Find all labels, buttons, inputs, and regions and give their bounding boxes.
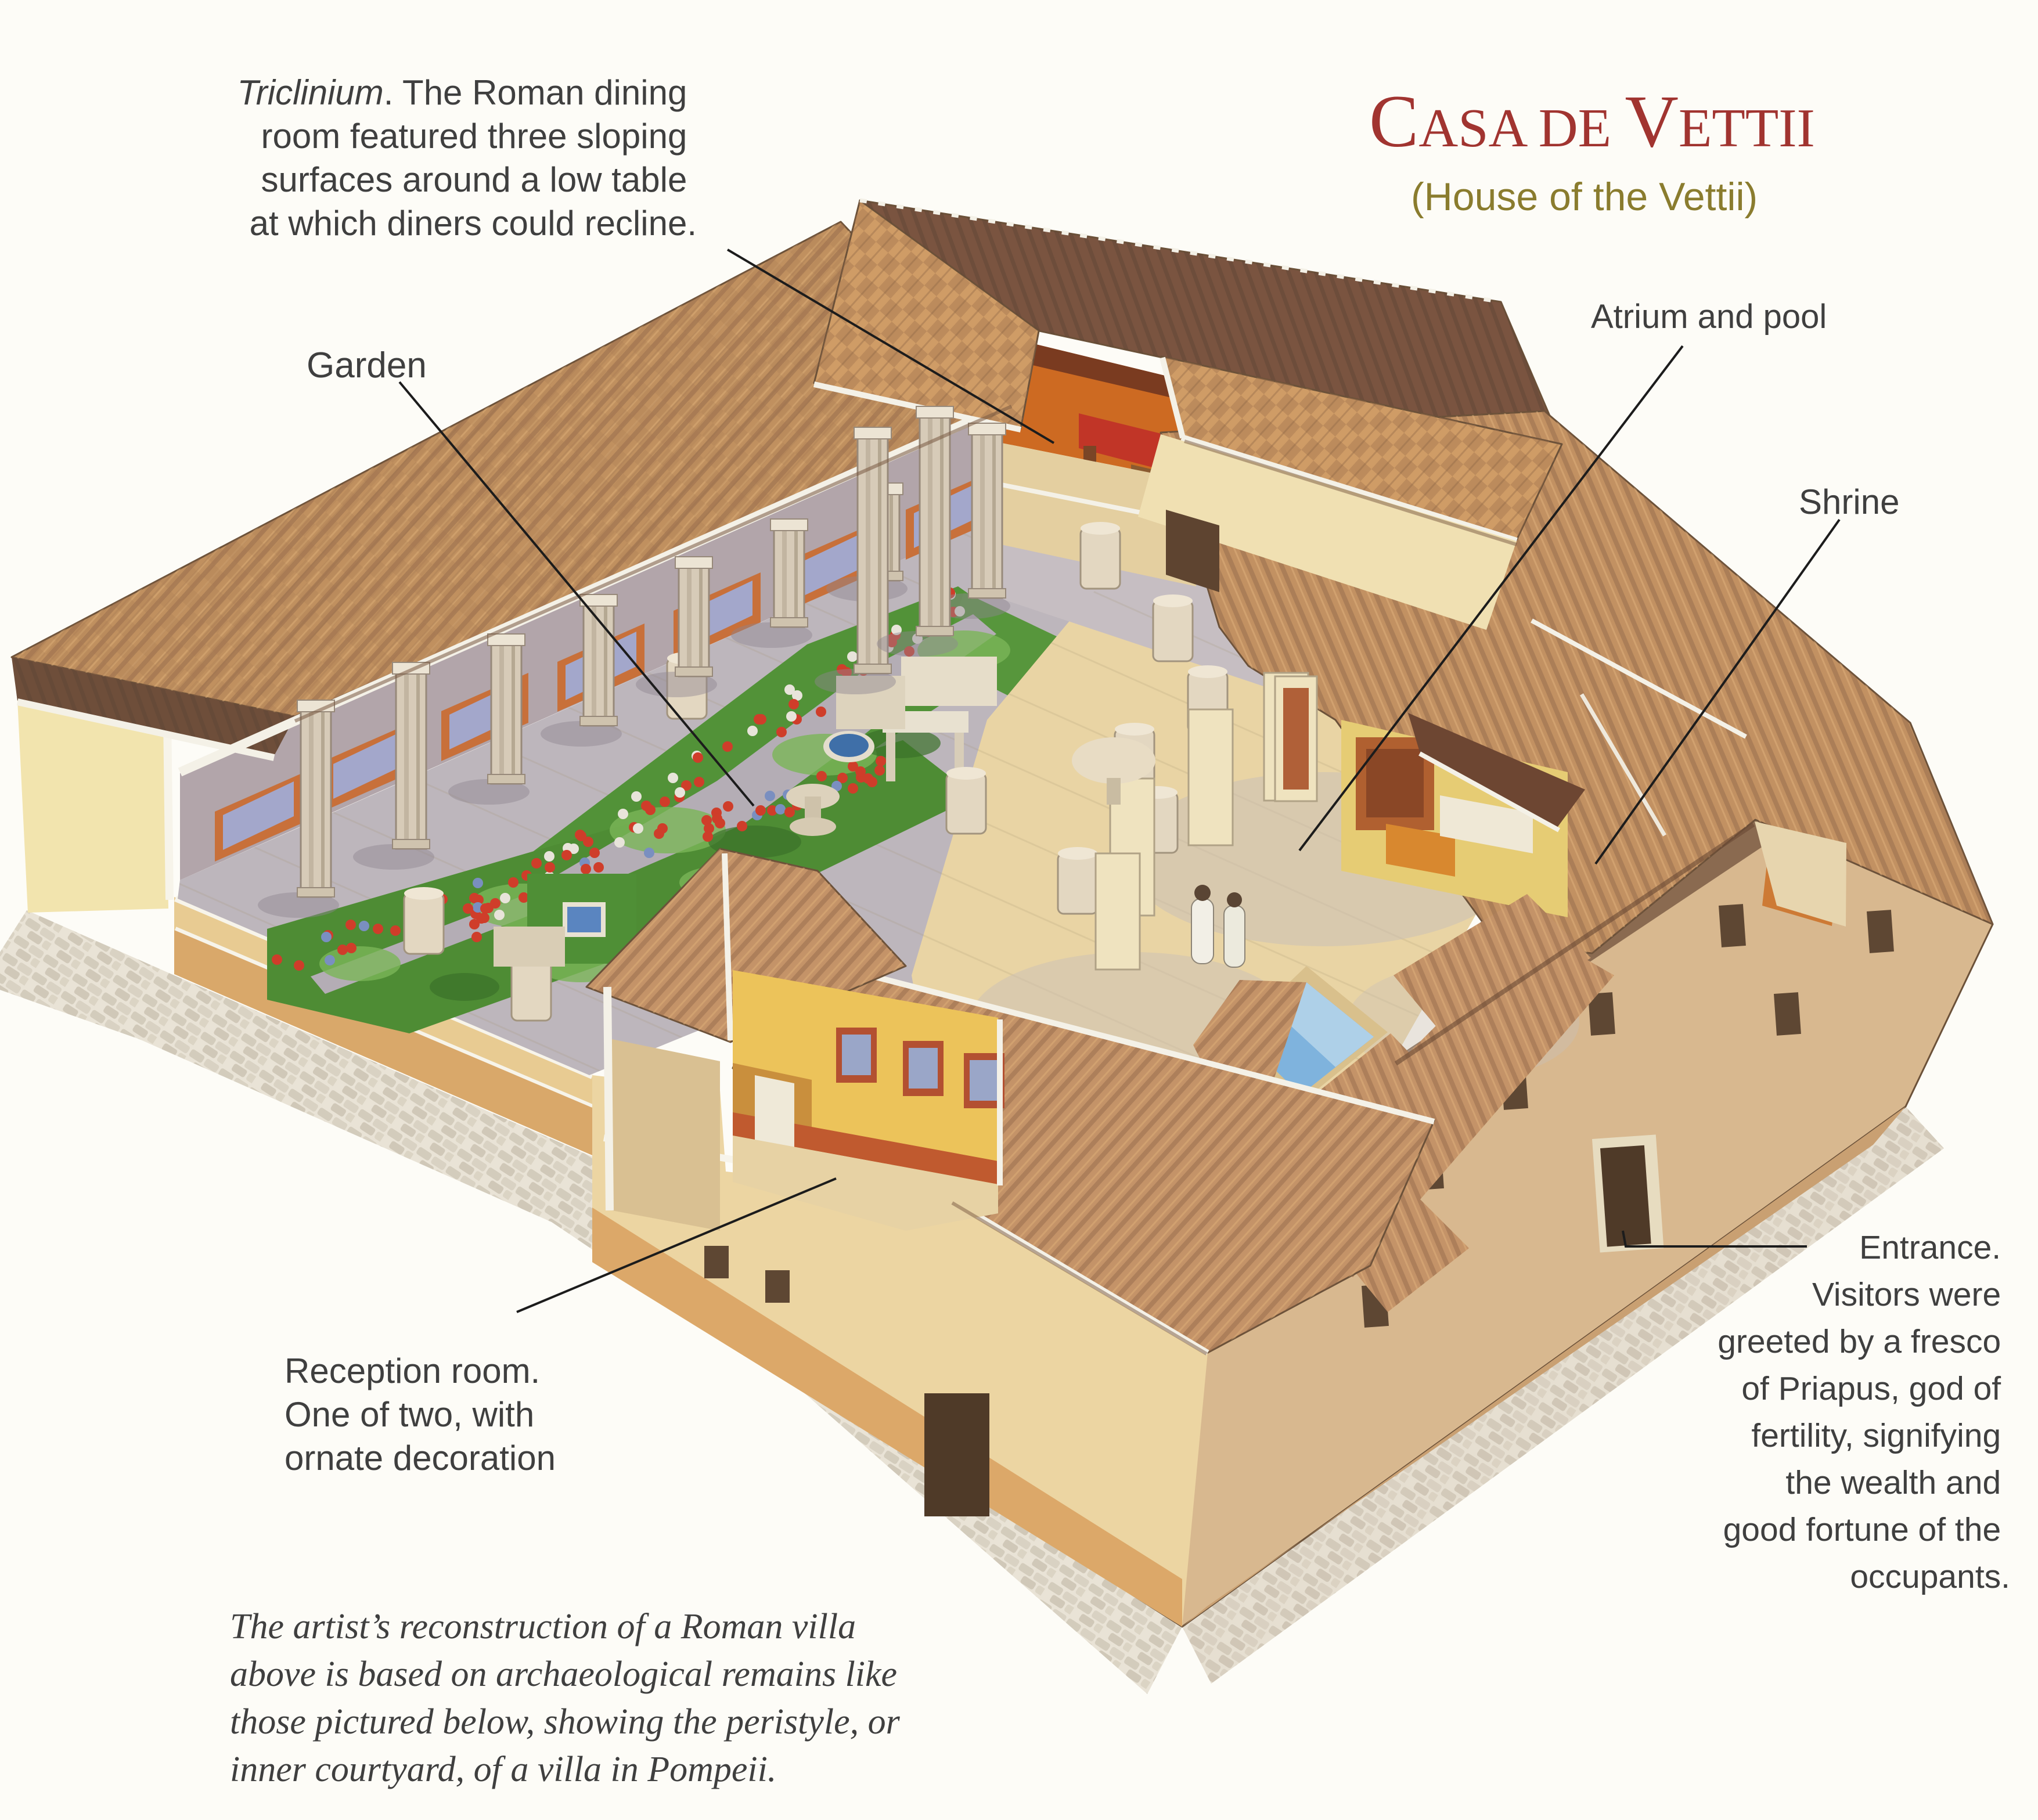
svg-text:Shrine: Shrine xyxy=(1799,482,1899,521)
svg-text:Reception room. One of two, wi: Reception room. One of two, with ornate … xyxy=(285,1352,556,1477)
svg-text:(House of the Vettii): (House of the Vettii) xyxy=(1411,175,1758,219)
svg-text:Atrium and pool: Atrium and pool xyxy=(1591,298,1827,336)
svg-text:Garden: Garden xyxy=(307,345,427,385)
